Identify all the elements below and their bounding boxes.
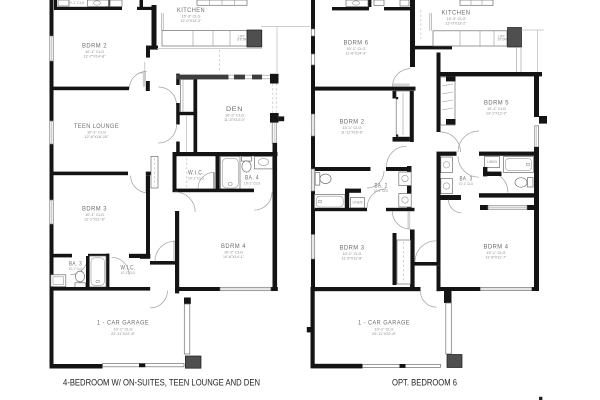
svg-text:10'-1" CLG: 10'-1" CLG: [69, 266, 83, 271]
svg-text:11'-8"X11'-7": 11'-8"X11'-7": [486, 255, 508, 260]
svg-text:12'-7"X14'-8": 12'-7"X14'-8": [84, 54, 107, 59]
svg-text:12'-6"X16'-10": 12'-6"X16'-10": [85, 134, 110, 139]
svg-text:10'-1" CLG: 10'-1" CLG: [244, 181, 260, 186]
svg-text:11'-5"X11'-8": 11'-5"X11'-8": [342, 256, 364, 261]
svg-text:22'-11"X22'-8": 22'-11"X22'-8": [111, 331, 136, 336]
svg-text:11'-6"X14'-3": 11'-6"X14'-3": [346, 51, 368, 56]
svg-text:12'-0"X13'-2": 12'-0"X13'-2": [181, 18, 203, 23]
svg-text:LINEN: LINEN: [487, 160, 498, 164]
svg-text:12'-1"X11'-8": 12'-1"X11'-8": [84, 217, 106, 222]
svg-text:STOR: STOR: [237, 38, 247, 42]
svg-text:OPT. BEDROOM 6: OPT. BEDROOM 6: [392, 378, 457, 388]
svg-text:13'-1"X12'-2": 13'-1"X12'-2": [486, 111, 508, 116]
svg-text:20'-11"X22'-8": 20'-11"X22'-8": [372, 331, 397, 336]
svg-text:10'-1" CLG: 10'-1" CLG: [121, 270, 135, 275]
svg-text:4-BEDROOM W/ ON-SUITES, TEEN L: 4-BEDROOM W/ ON-SUITES, TEEN LOUNGE AND …: [63, 378, 260, 388]
svg-text:STOR: STOR: [498, 38, 508, 42]
svg-text:LINEN: LINEN: [353, 201, 364, 205]
svg-text:10'-1" CLG: 10'-1" CLG: [459, 181, 473, 186]
svg-text:1 - CAR GARAGE: 1 - CAR GARAGE: [97, 320, 149, 327]
svg-text:10'-1" CLG: 10'-1" CLG: [68, 1, 85, 5]
svg-text:11'-11"X10'-6": 11'-11"X10'-6": [341, 130, 364, 135]
svg-text:1 - CAR GARAGE: 1 - CAR GARAGE: [358, 320, 410, 327]
svg-text:12'-0"X13'-2": 12'-0"X13'-2": [446, 21, 468, 26]
svg-text:14'-6"X14'-1": 14'-6"X14'-1": [223, 254, 245, 259]
svg-text:11'-0"X13'-0": 11'-0"X13'-0": [224, 117, 246, 122]
